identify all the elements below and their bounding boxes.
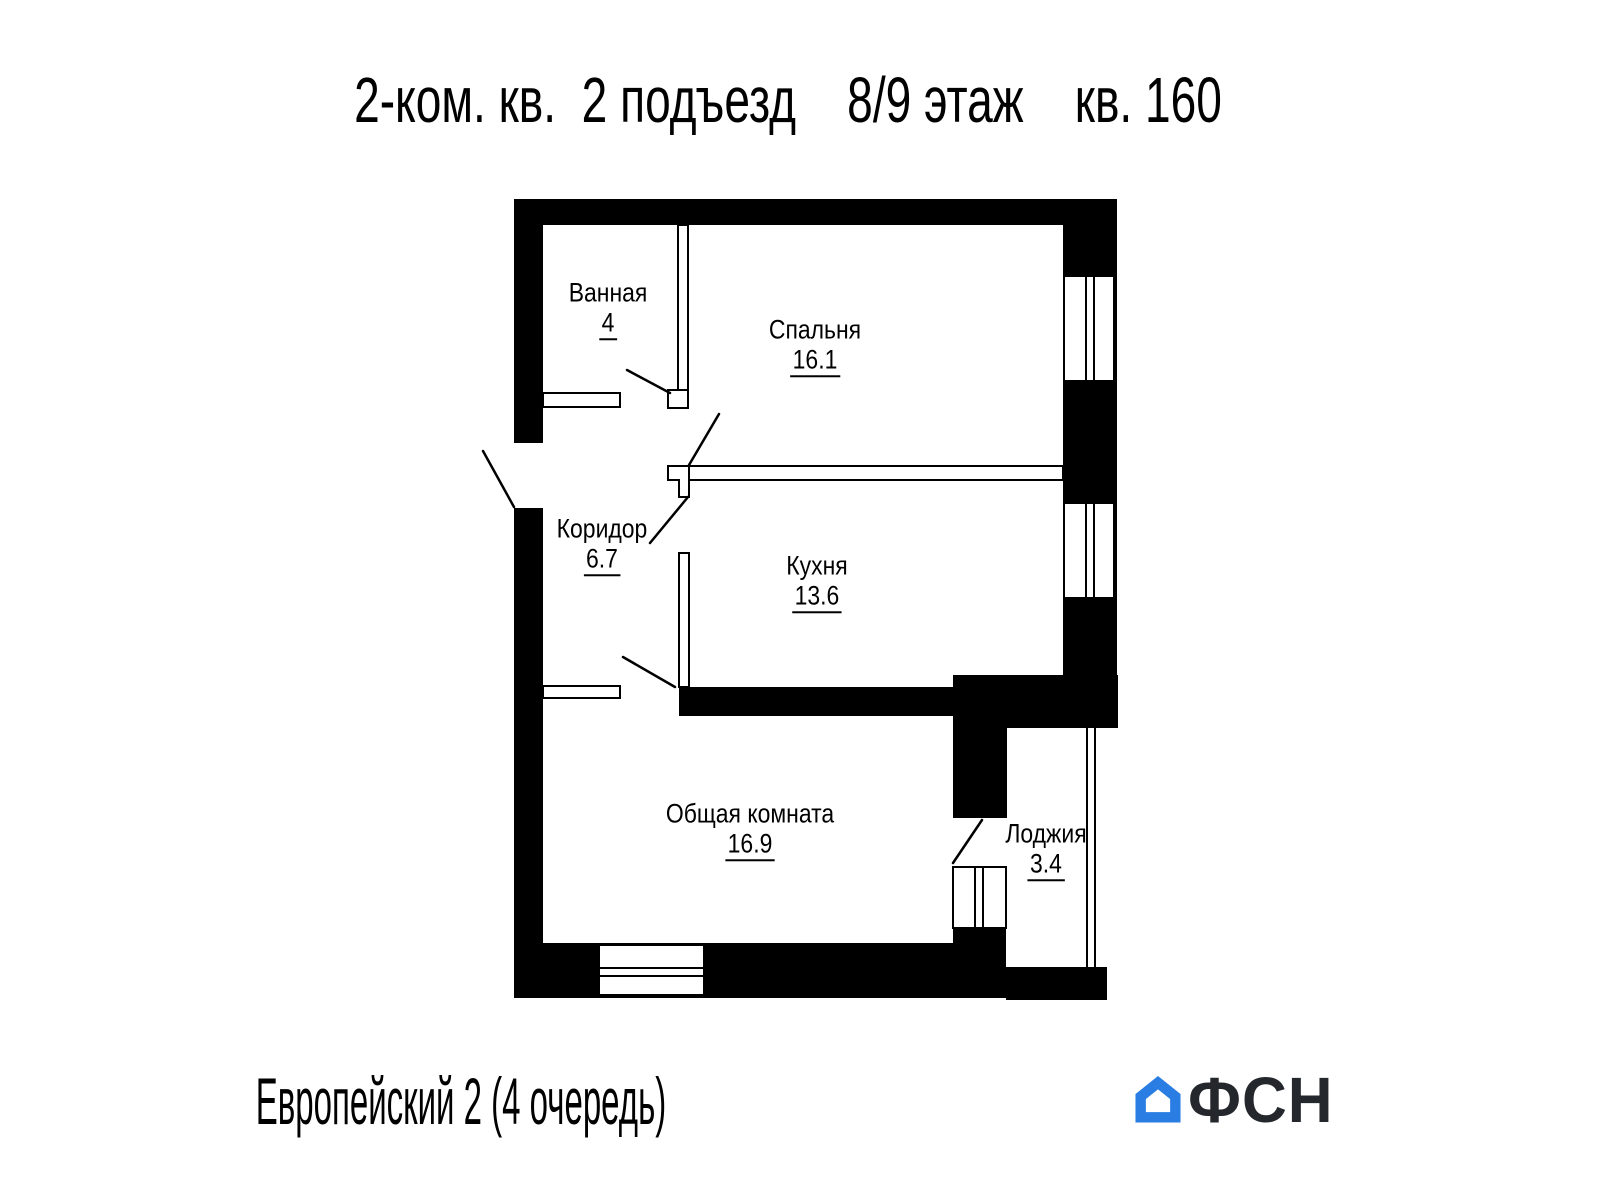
kitchen-door-swing: [650, 497, 688, 543]
room-area: 6.7: [583, 544, 620, 577]
balcony-window: [953, 867, 1006, 928]
loggia-glazing: [1087, 728, 1095, 967]
room-name: Кухня: [786, 550, 847, 580]
wall-corridor-stub: [543, 686, 620, 698]
room-area: 16.9: [725, 829, 775, 862]
balcony-door-swing: [953, 820, 982, 863]
room-label-kitchen: Кухня 13.6: [786, 550, 847, 613]
kitchen-window: [1064, 503, 1114, 598]
wall-under-balcony-window: [953, 928, 1006, 998]
wall-left-upper: [514, 225, 543, 443]
wall-bathroom-bedroom: [678, 225, 688, 392]
room-name: Коридор: [557, 513, 648, 543]
project-name: Европейский 2 (4 очередь): [256, 1063, 667, 1139]
room-area: 3.4: [1027, 849, 1064, 882]
entrance-door-swing: [483, 451, 514, 507]
kitchen-door-frame: [668, 466, 689, 497]
wall-corridor-kitchen: [679, 553, 689, 687]
bathroom-door-swing: [627, 370, 670, 393]
living-room-door-swing: [623, 657, 675, 687]
wall-left-lower: [514, 508, 543, 998]
company-logo: ФСН: [1132, 1074, 1342, 1128]
living-room-window: [599, 945, 704, 995]
room-label-living-room: Общая комната 16.9: [666, 798, 834, 861]
wall-top: [514, 199, 1117, 225]
room-area: 16.1: [790, 345, 840, 378]
wall-bottom: [514, 943, 1006, 998]
room-name: Общая комната: [666, 798, 834, 828]
room-name: Спальня: [769, 314, 861, 344]
room-label-corridor: Коридор 6.7: [557, 513, 648, 576]
bedroom-window: [1064, 276, 1114, 381]
door-swings: [483, 370, 982, 863]
room-label-loggia: Лоджия 3.4: [1005, 818, 1086, 881]
wall-bathroom-stub: [543, 393, 620, 407]
room-area: 13.6: [792, 581, 842, 614]
windows: [599, 276, 1114, 995]
logo-text: ФСН: [1188, 1063, 1334, 1137]
room-area: 4: [599, 308, 617, 341]
house-icon: [1132, 1074, 1184, 1126]
bedroom-door-swing: [689, 414, 719, 465]
room-label-bathroom: Ванная 4: [569, 277, 648, 340]
wall-kitchen-bottom: [679, 687, 953, 716]
wall-loggia-bottom: [1006, 967, 1107, 1000]
wall-bedroom-kitchen: [689, 466, 1063, 480]
room-name: Лоджия: [1005, 818, 1086, 848]
room-name: Ванная: [569, 277, 648, 307]
wall-kitchen-loggia-step: [953, 675, 1118, 728]
wall-loggia-divider: [953, 728, 1007, 818]
page-title: 2-ком. кв. 2 подъезд 8/9 этаж кв. 160: [354, 63, 1222, 137]
room-label-bedroom: Спальня 16.1: [769, 314, 861, 377]
